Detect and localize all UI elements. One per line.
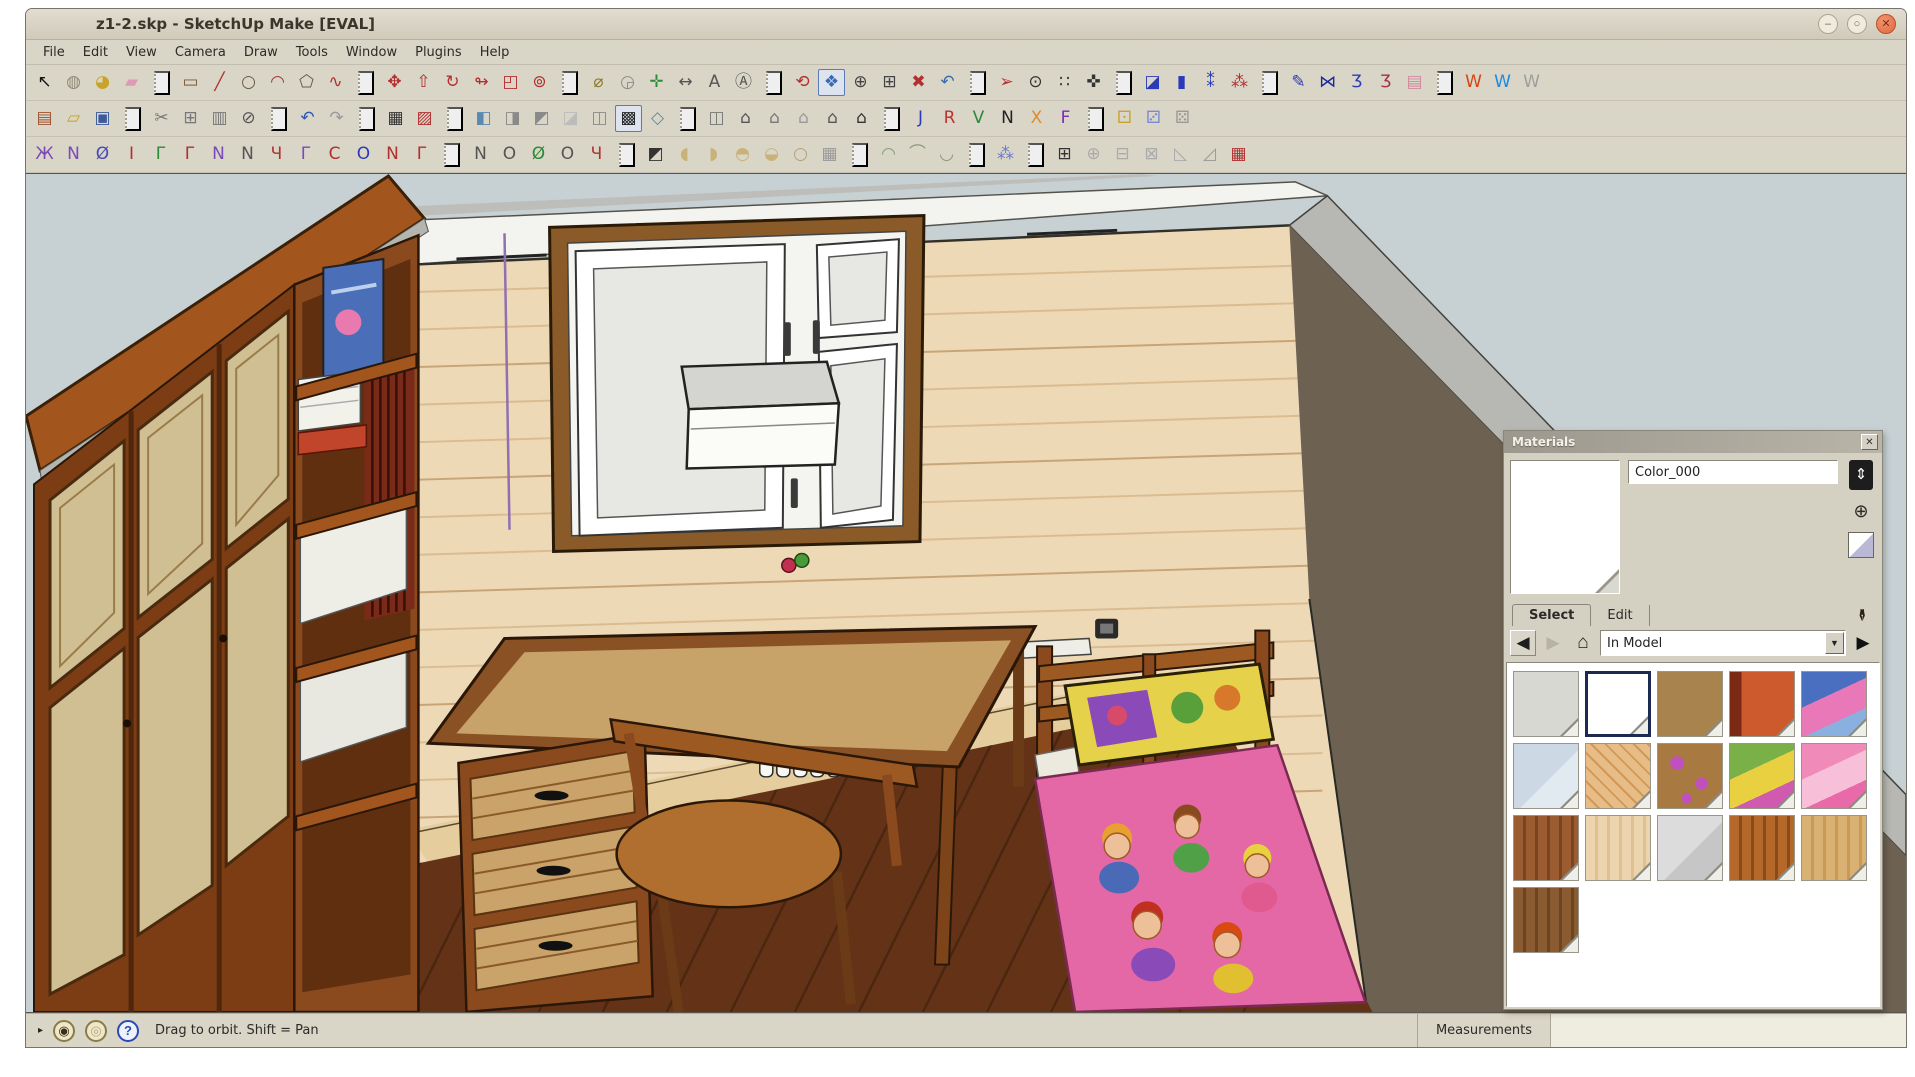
export-button-x[interactable]: X [1023,105,1050,132]
circle-tool-button[interactable]: ○ [235,69,262,96]
widget-tool-b[interactable]: ⊕ [1080,141,1107,168]
follow-me-tool-button[interactable]: ↬ [468,69,495,96]
toolbar-separator [1116,71,1132,95]
move-tool-button[interactable]: ✥ [381,69,408,96]
material-swatch[interactable] [1729,743,1795,809]
material-swatch[interactable] [1585,671,1651,737]
materials-tab[interactable]: Select [1512,604,1591,626]
scene-button-c[interactable]: ⌂ [761,105,788,132]
material-swatch[interactable] [1513,887,1579,953]
menu-item[interactable]: Camera [166,43,235,62]
window-controls: –○✕ [1818,14,1896,34]
secondary-pane-icon[interactable]: ⇕ [1849,460,1873,490]
materials-panel: Materials ✕ ⇕ ⊕ SelectEdit ✒ ◀ ▶ ⌂ [1503,430,1883,1010]
make-component-button[interactable]: ◍ [60,69,87,96]
geolocation-icon[interactable]: ◉ [53,1020,75,1042]
label-tool-button[interactable]: ⁂ [992,141,1019,168]
curve-tool-a[interactable]: N [467,141,494,168]
construction-toolbar-b[interactable]: ▮ [1168,69,1195,96]
print-button[interactable]: ▦ [382,105,409,132]
material-preview-swatch[interactable] [1510,460,1620,594]
undo-button[interactable]: ↶ [294,105,321,132]
menu-item[interactable]: View [117,43,166,62]
curve-tool-c[interactable]: Ø [525,141,552,168]
construction-toolbar-c[interactable]: ⁑ [1197,69,1224,96]
die-gray-button[interactable]: ⚄ [1169,105,1196,132]
3d-text-tool-button[interactable]: Ⓐ [730,69,757,96]
terrain-tool-d[interactable]: ◓ [729,141,756,168]
view-front-button[interactable]: ◩ [528,105,555,132]
export-button-v[interactable]: V [965,105,992,132]
construction-toolbar-a[interactable]: ◪ [1139,69,1166,96]
dimension-tool-button[interactable]: ↔ [672,69,699,96]
materials-panel-title: Materials [1512,435,1575,449]
style-toolbar-c[interactable]: Ʒ [1343,69,1370,96]
scene-button-b[interactable]: ⌂ [732,105,759,132]
scene-button-a[interactable]: ◫ [703,105,730,132]
view-back-button[interactable]: ◫ [586,105,613,132]
model-info-button[interactable]: ▨ [411,105,438,132]
material-swatch[interactable] [1801,671,1867,737]
status-hint: Drag to orbit. Shift = Pan [155,1023,319,1038]
shell-tool-a[interactable]: ◠ [875,141,902,168]
copy-button[interactable]: ⊞ [177,105,204,132]
widget-tool-e[interactable]: ◺ [1167,141,1194,168]
toolbar-row-1: ↖◍◕▰▭╱○◠⬠∿✥⇧↻↬◰⊚⌀◶✛↔AⒶ⟲❖⊕⊞✖↶➢⊙∷✜◪▮⁑⁂✎⋈ƷƷ… [26,65,1906,101]
bezier-tool-i[interactable]: Ч [263,141,290,168]
material-swatch[interactable] [1801,743,1867,809]
chevron-down-icon[interactable]: ▼ [1825,632,1844,654]
orbit-tool-button[interactable]: ⟲ [789,69,816,96]
menu-item[interactable]: Window [337,43,406,62]
view-perspective-button[interactable]: ◇ [644,105,671,132]
arc-tool-button[interactable]: ◠ [264,69,291,96]
line-tool-button[interactable]: ╱ [206,69,233,96]
toolbar-separator [1437,71,1453,95]
export-button-f[interactable]: F [1052,105,1079,132]
material-swatch[interactable] [1657,815,1723,881]
toolbar-row-2: ▤▱▣✂⊞▥⊘↶↷▦▨◧◨◩◪◫▩◇◫⌂⌂⌂⌂⌂JRVNXF⚀⚂⚄ [26,101,1906,137]
curve-tool-b[interactable]: O [496,141,523,168]
measurements-area: Measurements [1417,1014,1906,1047]
style-toolbar-e[interactable]: ▤ [1401,69,1428,96]
forward-button[interactable]: ▶ [1540,630,1566,656]
measurements-label: Measurements [1417,1014,1550,1047]
bezier-tool-e[interactable]: Γ [147,141,174,168]
bezier-tool-l[interactable]: O [350,141,377,168]
terrain-tool-a[interactable]: ◩ [642,141,669,168]
details-arrow-button[interactable]: ▶ [1850,630,1876,656]
tape-measure-button[interactable]: ⌀ [585,69,612,96]
materials-panel-titlebar[interactable]: Materials ✕ [1504,431,1882,453]
warehouse-red-button[interactable]: W [1460,69,1487,96]
bezier-tool-a[interactable]: Ж [31,141,58,168]
bezier-tool-h[interactable]: N [234,141,261,168]
menu-item[interactable]: Draw [235,43,287,62]
shell-tool-b[interactable]: ⌒ [904,141,931,168]
desktop: z1-2.skp - SketchUp Make [EVAL] –○✕ File… [0,0,1915,1077]
toolbar-separator [359,107,375,131]
close-button[interactable]: ✕ [1876,14,1896,34]
position-camera-button[interactable]: ➢ [993,69,1020,96]
toolbar-separator [444,143,460,167]
materials-header: ⇕ ⊕ [1504,453,1882,598]
materials-tab[interactable]: Edit [1591,605,1649,626]
die-blue-button[interactable]: ⚂ [1140,105,1167,132]
scale-tool-button[interactable]: ◰ [497,69,524,96]
toolbar-separator [680,107,696,131]
offset-tool-button[interactable]: ⊚ [526,69,553,96]
pan-tool-button[interactable]: ❖ [818,69,845,96]
toolbar-separator [970,71,986,95]
push-pull-tool-button[interactable]: ⇧ [410,69,437,96]
die-yellow-button[interactable]: ⚀ [1111,105,1138,132]
material-swatch[interactable] [1729,671,1795,737]
context-menu-arrow[interactable]: ▸ [26,1025,53,1036]
material-swatch[interactable] [1585,815,1651,881]
scene-button-d[interactable]: ⌂ [790,105,817,132]
widget-tool-f[interactable]: ◿ [1196,141,1223,168]
zoom-tool-button[interactable]: ⊕ [847,69,874,96]
terrain-tool-f[interactable]: ○ [787,141,814,168]
toolbar-separator [447,107,463,131]
terrain-tool-g[interactable]: ▦ [816,141,843,168]
bezier-tool-g[interactable]: N [205,141,232,168]
paint-bucket-button[interactable]: ◕ [89,69,116,96]
toolbar-separator [154,71,170,95]
status-icons: ◉◎? [53,1020,139,1042]
curve-tool-e[interactable]: Ч [583,141,610,168]
material-swatch[interactable] [1657,743,1723,809]
create-material-icon[interactable]: ⊕ [1849,499,1873,523]
widget-tool-d[interactable]: ⊠ [1138,141,1165,168]
menu-bar: FileEditViewCameraDrawToolsWindowPlugins… [26,40,1906,65]
menu-item[interactable]: Help [471,43,519,62]
export-button-n[interactable]: N [994,105,1021,132]
terrain-tool-b[interactable]: ◖ [671,141,698,168]
rotate-tool-button[interactable]: ↻ [439,69,466,96]
material-swatch-list [1506,662,1880,1007]
export-button-j[interactable]: J [907,105,934,132]
window-title: z1-2.skp - SketchUp Make [EVAL] [96,15,375,33]
measurements-input[interactable] [1550,1014,1906,1047]
home-button[interactable]: ⌂ [1570,630,1596,656]
warehouse-gray-button[interactable]: W [1518,69,1545,96]
style-toolbar-d[interactable]: Ʒ [1372,69,1399,96]
collection-dropdown[interactable]: In Model ▼ [1600,630,1846,656]
freehand-tool-button[interactable]: ∿ [322,69,349,96]
shell-tool-c[interactable]: ◡ [933,141,960,168]
menu-item[interactable]: Edit [74,43,117,62]
default-material-swatch[interactable] [1848,532,1874,558]
bezier-tool-j[interactable]: Γ [292,141,319,168]
protractor-button[interactable]: ◶ [614,69,641,96]
bezier-tool-k[interactable]: C [321,141,348,168]
widget-tool-g[interactable]: ▦ [1225,141,1252,168]
material-swatch[interactable] [1801,815,1867,881]
previous-view-button[interactable]: ↶ [934,69,961,96]
materials-tabs: SelectEdit ✒ [1504,598,1882,626]
title-bar[interactable]: z1-2.skp - SketchUp Make [EVAL] –○✕ [26,9,1906,40]
maximize-button[interactable]: ○ [1847,14,1867,34]
save-file-button[interactable]: ▣ [89,105,116,132]
text-tool-button[interactable]: A [701,69,728,96]
help-icon[interactable]: ? [117,1020,139,1042]
open-file-button[interactable]: ▱ [60,105,87,132]
new-file-button[interactable]: ▤ [31,105,58,132]
toolbar-separator [1088,107,1104,131]
bookshelf [294,235,418,1012]
bezier-tool-n[interactable]: Γ [408,141,435,168]
bezier-tool-b[interactable]: N [60,141,87,168]
compass-button[interactable]: ✜ [1080,69,1107,96]
paste-button[interactable]: ▥ [206,105,233,132]
walk-tool-button[interactable]: ∷ [1051,69,1078,96]
collection-dropdown-value: In Model [1601,636,1825,651]
material-swatch[interactable] [1729,815,1795,881]
rectangle-tool-button[interactable]: ▭ [177,69,204,96]
zoom-extents-button[interactable]: ✖ [905,69,932,96]
toolbar-separator [1262,71,1278,95]
redo-button[interactable]: ↷ [323,105,350,132]
materials-nav: ◀ ▶ ⌂ In Model ▼ ▶ [1504,626,1882,662]
material-swatch[interactable] [1513,815,1579,881]
materials-close-button[interactable]: ✕ [1861,434,1878,450]
eraser-button[interactable]: ▰ [118,69,145,96]
warehouse-blue-button[interactable]: W [1489,69,1516,96]
toolbar-separator [852,143,868,167]
construction-toolbar-d[interactable]: ⁂ [1226,69,1253,96]
claim-credit-icon[interactable]: ◎ [85,1020,107,1042]
toolbar-row-3: ЖNØIΓΓNNЧΓCONΓNOØOЧ◩◖◗◓◒○▦◠⌒◡⁂⊞⊕⊟⊠◺◿▦ [26,137,1906,173]
style-toolbar-a[interactable]: ✎ [1285,69,1312,96]
polygon-tool-button[interactable]: ⬠ [293,69,320,96]
view-styles-button[interactable]: ▩ [615,105,642,132]
bezier-tool-f[interactable]: Γ [176,141,203,168]
zoom-window-button[interactable]: ⊞ [876,69,903,96]
toolbar-separator [1028,143,1044,167]
view-top-button[interactable]: ◨ [499,105,526,132]
toolbar-separator [562,71,578,95]
toolbar-separator [619,143,635,167]
terrain-tool-e[interactable]: ◒ [758,141,785,168]
look-around-button[interactable]: ⊙ [1022,69,1049,96]
delete-button[interactable]: ⊘ [235,105,262,132]
menu-item[interactable]: Plugins [406,43,471,62]
status-bar: ▸ ◉◎? Drag to orbit. Shift = Pan Measure… [26,1013,1906,1047]
export-button-r[interactable]: R [936,105,963,132]
cut-button[interactable]: ✂ [148,105,175,132]
toolbar-separator [884,107,900,131]
menu-item[interactable]: Tools [287,43,337,62]
toolbar-separator [358,71,374,95]
curve-tool-d[interactable]: O [554,141,581,168]
widget-tool-a[interactable]: ⊞ [1051,141,1078,168]
view-right-button[interactable]: ◪ [557,105,584,132]
bezier-tool-c[interactable]: Ø [89,141,116,168]
material-name-input[interactable] [1628,460,1838,484]
menu-item[interactable]: File [34,43,74,62]
material-swatch[interactable] [1513,743,1579,809]
toolbar-separator [969,143,985,167]
bezier-tool-m[interactable]: N [379,141,406,168]
material-swatch[interactable] [1585,743,1651,809]
scene-button-f[interactable]: ⌂ [848,105,875,132]
toolbar-separator [125,107,141,131]
bezier-tool-d[interactable]: I [118,141,145,168]
minimize-button[interactable]: – [1818,14,1838,34]
material-swatch[interactable] [1513,671,1579,737]
material-swatch[interactable] [1657,671,1723,737]
toolbar-separator [766,71,782,95]
axes-tool-button[interactable]: ✛ [643,69,670,96]
back-button[interactable]: ◀ [1510,630,1536,656]
toolbar-separator [271,107,287,131]
eyedropper-icon[interactable]: ✒ [1850,602,1872,628]
select-tool-button[interactable]: ↖ [31,69,58,96]
terrain-tool-c[interactable]: ◗ [700,141,727,168]
view-iso-button[interactable]: ◧ [470,105,497,132]
widget-tool-c[interactable]: ⊟ [1109,141,1136,168]
scene-button-e[interactable]: ⌂ [819,105,846,132]
style-toolbar-b[interactable]: ⋈ [1314,69,1341,96]
